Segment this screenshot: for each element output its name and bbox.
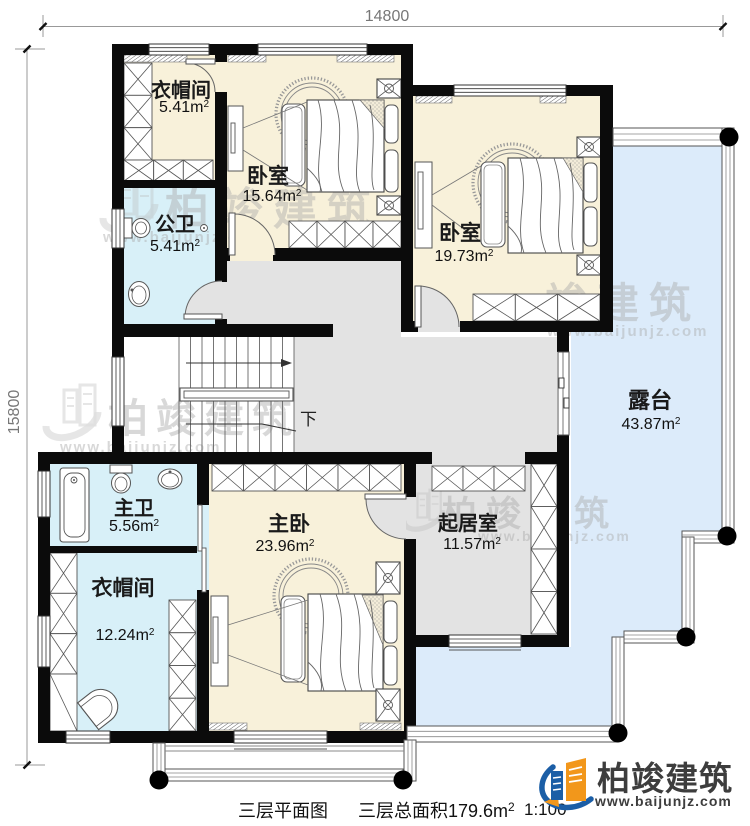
svg-text:主卫: 主卫 (114, 496, 154, 520)
svg-text:柏竣建筑: 柏竣建筑 (597, 760, 733, 797)
svg-text:卧室: 卧室 (247, 164, 289, 188)
svg-text:www.baijunjz.com: www.baijunjz.com (594, 793, 732, 809)
svg-text:起居室: 起居室 (437, 511, 498, 535)
svg-text:43.87m2: 43.87m2 (622, 416, 681, 433)
svg-text:三层平面图: 三层平面图 (238, 801, 328, 821)
svg-text:主卧: 主卧 (268, 513, 310, 536)
svg-text:衣帽间: 衣帽间 (92, 576, 155, 600)
svg-text:下: 下 (300, 410, 317, 429)
svg-text:23.96m2: 23.96m2 (256, 538, 315, 555)
svg-text:5.41m2: 5.41m2 (159, 99, 209, 116)
svg-text:露台: 露台 (628, 388, 672, 413)
svg-text:5.56m2: 5.56m2 (109, 518, 159, 535)
svg-text:三层总面积179.6m2: 三层总面积179.6m2 (358, 800, 515, 821)
svg-text:5.41m2: 5.41m2 (150, 238, 200, 255)
svg-text:14800: 14800 (365, 8, 410, 25)
svg-text:11.57m2: 11.57m2 (443, 536, 501, 553)
svg-text:卧室: 卧室 (439, 221, 481, 245)
svg-text:公卫: 公卫 (155, 213, 195, 236)
svg-text:19.73m2: 19.73m2 (435, 248, 494, 265)
svg-text:12.24m2: 12.24m2 (96, 627, 155, 644)
svg-text:15800: 15800 (6, 390, 23, 435)
svg-text:15.64m2: 15.64m2 (243, 188, 302, 205)
